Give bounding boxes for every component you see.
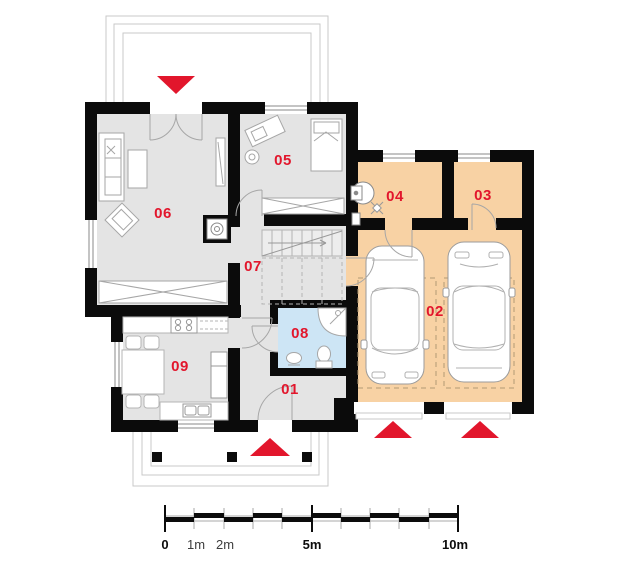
room-label-06: 06 [150,205,176,222]
room-label-03: 03 [470,187,496,204]
entrance-arrow-icon [250,438,290,456]
desk-chair [245,150,259,164]
chair [144,395,159,408]
porch-column [227,452,237,462]
scale-label-2m: 2m [208,537,242,552]
terrace-outline [106,16,328,108]
room-label-09: 09 [167,358,193,375]
scale-label-5m: 5m [295,537,329,552]
dining-table [122,350,164,394]
entrance-arrow-icon [157,76,195,94]
coffee-table [128,150,147,188]
room-label-08: 08 [287,325,313,342]
electric-box [352,213,360,225]
stove [171,317,197,333]
toilet [316,346,332,368]
tv-board [216,138,225,186]
floor-plan: 01 02 03 04 05 06 07 08 09 0 1m 2m 5m 10… [0,0,620,573]
floor-plan-drawing [0,0,620,573]
fridge [211,352,227,398]
chair [126,336,141,349]
car-icon [361,246,429,384]
room-label-02: 02 [422,303,448,320]
sofa [99,133,124,201]
scale-label-0: 0 [148,537,182,552]
sideboard [99,281,227,303]
bed [311,119,342,171]
kitchen-sink [183,404,211,417]
wardrobe [262,198,344,214]
room-label-04: 04 [382,188,408,205]
room-label-07: 07 [240,258,266,275]
room-label-01: 01 [277,381,303,398]
room-label-05: 05 [270,152,296,169]
porch-column [302,452,312,462]
entrance-arrow-icon [374,421,412,438]
chair [144,336,159,349]
chair [126,395,141,408]
car-icon [443,242,515,382]
porch-column [152,452,162,462]
scale-bar [165,505,458,532]
entrance-arrow-icon [461,421,499,438]
fireplace [207,219,227,239]
scale-label-10m: 10m [438,537,472,552]
